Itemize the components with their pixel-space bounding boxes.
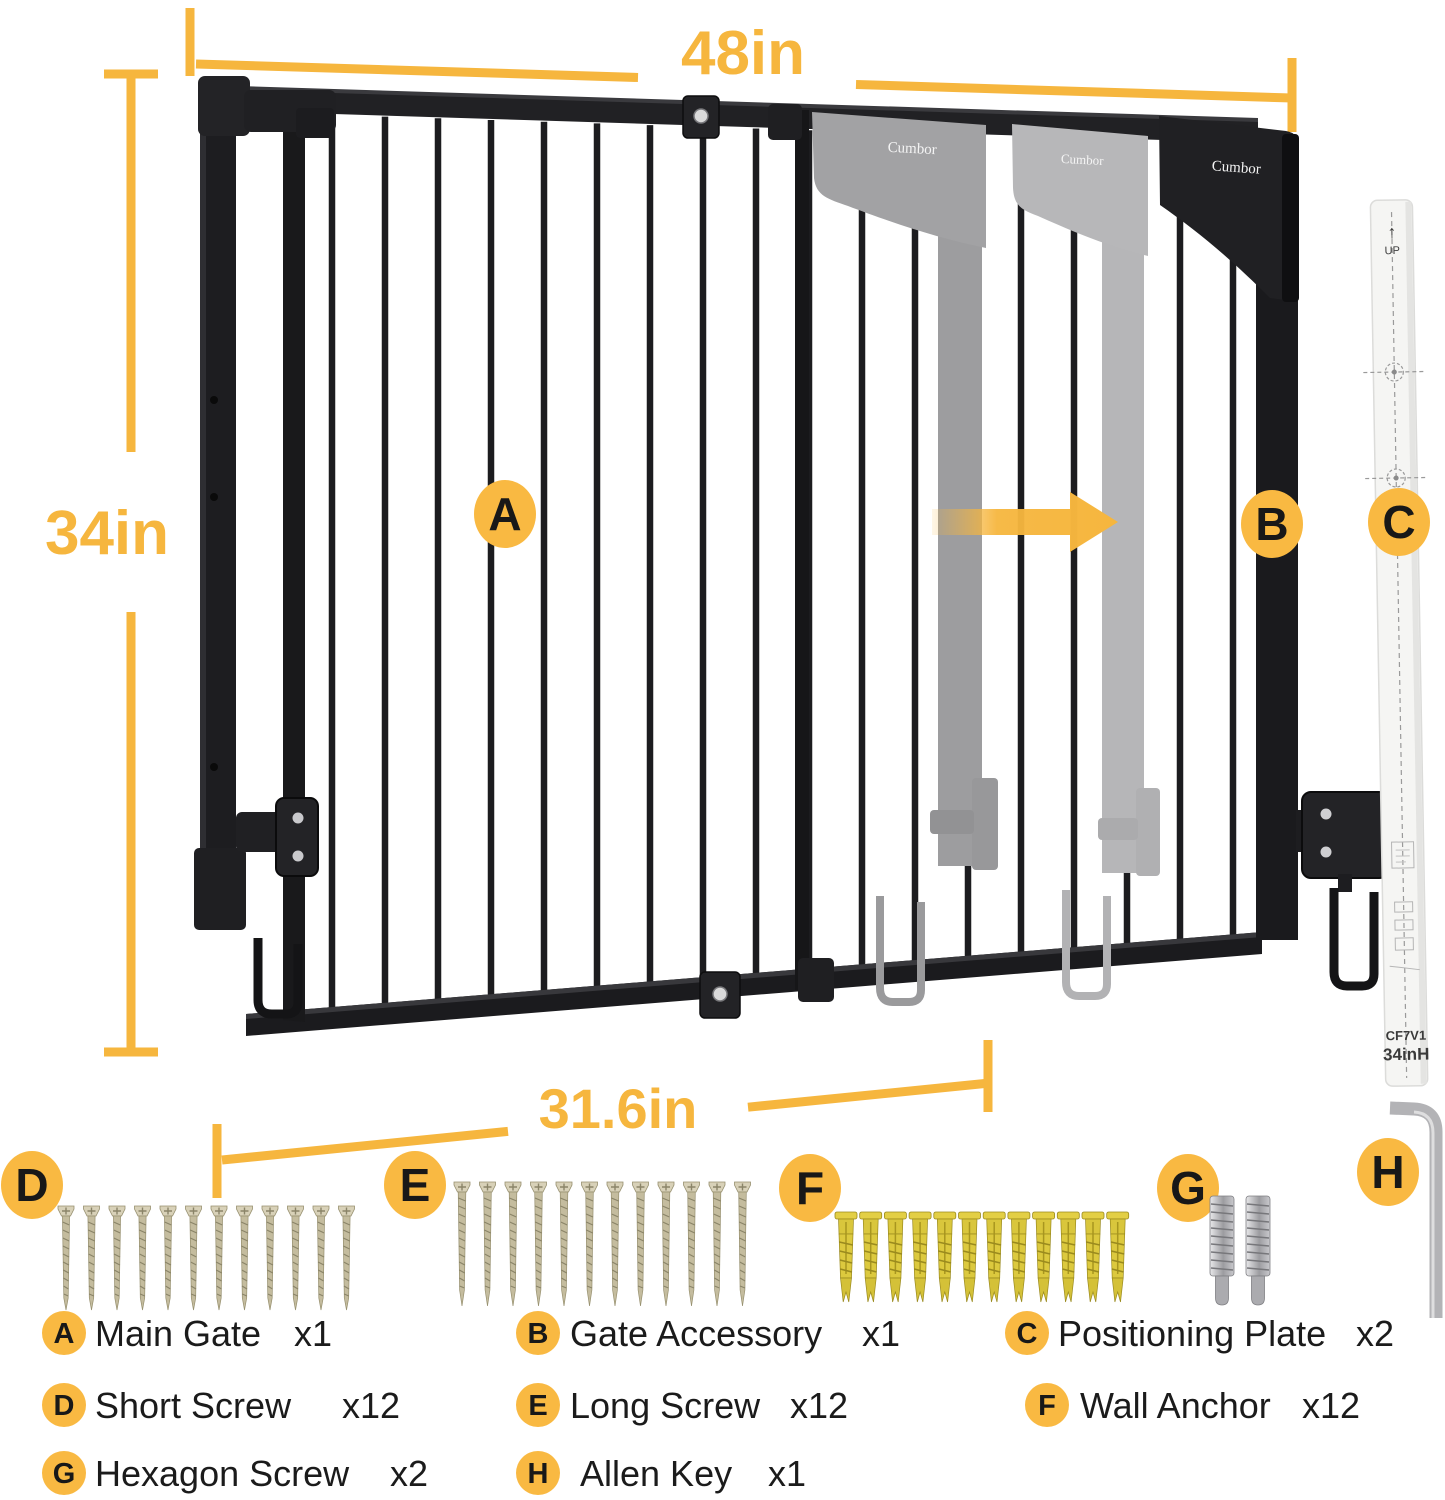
wall-post-left-highlight (200, 78, 206, 860)
legend-item-main-gate: A Main Gate x1 (42, 1311, 332, 1355)
bottom-rail-bracket (798, 958, 834, 1002)
svg-text:F: F (796, 1162, 824, 1214)
post-screw-hole (210, 396, 218, 404)
callout-main-gate: A (474, 480, 536, 548)
gate-mid-stile (795, 110, 809, 990)
ghost-latch-plate (1136, 788, 1160, 876)
svg-text:G: G (1170, 1162, 1206, 1214)
wall-anchors-group (835, 1212, 1129, 1302)
plate-model: CF7V1 (1386, 1028, 1427, 1044)
accessory-foot (1334, 888, 1374, 986)
svg-text:x2: x2 (1356, 1313, 1394, 1354)
legend-item-allen-key: H Allen Key x1 (516, 1451, 806, 1495)
dimension-panel-width: 31.6in (217, 1040, 988, 1198)
svg-text:Allen Key: Allen Key (580, 1453, 732, 1494)
brand-logo: Cumbor (1211, 158, 1261, 177)
brand-logo-ghost2: Cumbor (1061, 151, 1105, 168)
connector-screw (713, 987, 727, 1001)
legend: A Main Gate x1 B Gate Accessory x1 C Pos… (42, 1311, 1394, 1495)
plate-up-arrow: ↑ (1387, 222, 1396, 242)
svg-text:A: A (54, 1318, 75, 1350)
connector-screw (694, 109, 708, 123)
ghost-latch-plate (972, 778, 998, 870)
product-diagram: 48in 34in (0, 0, 1445, 1500)
svg-text:E: E (400, 1159, 431, 1211)
hinge-screw (293, 813, 304, 824)
hinge-screw (293, 851, 304, 862)
svg-text:Main Gate: Main Gate (95, 1313, 261, 1354)
svg-text:x1: x1 (768, 1453, 806, 1494)
callout-long-screw: E (384, 1151, 446, 1219)
plate-size: 34inH (1383, 1045, 1430, 1065)
svg-text:E: E (528, 1390, 547, 1422)
ghost-latch-housing (812, 112, 986, 248)
svg-text:G: G (53, 1458, 76, 1490)
ghost-latch-arm (930, 810, 974, 834)
bottom-hinge-plate (276, 798, 318, 876)
top-hinge-block (198, 76, 250, 136)
hexagon-screws-group (1210, 1196, 1270, 1305)
short-screws-group (58, 1206, 355, 1310)
plate-up-label: UP (1384, 245, 1399, 257)
callout-short-screw: D (1, 1151, 63, 1219)
svg-text:x12: x12 (790, 1385, 848, 1426)
svg-text:F: F (1038, 1390, 1056, 1422)
svg-text:D: D (15, 1159, 48, 1211)
legend-item-wall-anchor: F Wall Anchor x12 (1025, 1383, 1360, 1427)
svg-text:Wall Anchor: Wall Anchor (1080, 1385, 1271, 1426)
svg-text:Long Screw: Long Screw (570, 1385, 761, 1426)
dimension-height-label: 34in (45, 499, 169, 568)
gate-hinge-stile (283, 104, 305, 1022)
legend-item-long-screw: E Long Screw x12 (516, 1383, 848, 1427)
svg-text:x2: x2 (390, 1453, 428, 1494)
dimension-height: 34in (45, 74, 169, 1052)
svg-text:A: A (488, 488, 521, 540)
ghost-latch-housing (1012, 124, 1148, 256)
svg-text:x1: x1 (862, 1313, 900, 1354)
callout-positioning-plate: C (1368, 488, 1430, 556)
brand-logo-ghost1: Cumbor (887, 140, 937, 159)
svg-text:Positioning Plate: Positioning Plate (1058, 1313, 1326, 1354)
accessory-foot-stem (1338, 874, 1352, 892)
top-hinge-step (296, 108, 334, 138)
callout-gate-accessory: B (1241, 490, 1303, 558)
dimension-panel-width-label: 31.6in (539, 1077, 698, 1140)
post-screw-hole (210, 493, 218, 501)
gate-accessory-ghost-2: Cumbor (1012, 124, 1160, 996)
wall-post-left-sleeve (194, 848, 246, 930)
svg-text:C: C (1382, 496, 1415, 548)
long-screws-group (454, 1182, 751, 1306)
svg-text:H: H (1371, 1146, 1404, 1198)
legend-item-gate-accessory: B Gate Accessory x1 (516, 1311, 900, 1355)
diagram-canvas: 48in 34in (0, 0, 1445, 1500)
legend-item-hexagon-screw: G Hexagon Screw x2 (42, 1451, 428, 1495)
svg-text:B: B (528, 1318, 549, 1350)
svg-text:C: C (1017, 1318, 1038, 1350)
svg-text:x12: x12 (1302, 1385, 1360, 1426)
ghost-latch-arm (1098, 818, 1138, 840)
post-screw-hole (210, 763, 218, 771)
legend-item-positioning-plate: C Positioning Plate x2 (1005, 1311, 1394, 1355)
accessory-wall-plate (1302, 792, 1388, 878)
dimension-total-width-label: 48in (681, 19, 805, 88)
svg-text:Short Screw: Short Screw (95, 1385, 292, 1426)
callout-wall-anchor: F (779, 1154, 841, 1222)
svg-text:Gate Accessory: Gate Accessory (570, 1313, 822, 1354)
svg-text:B: B (1255, 498, 1288, 550)
accessory-housing-cap (1282, 134, 1299, 302)
legend-item-short-screw: D Short Screw x12 (42, 1383, 400, 1427)
plate-screw (1321, 847, 1332, 858)
svg-text:D: D (54, 1390, 75, 1422)
svg-text:x1: x1 (294, 1313, 332, 1354)
svg-text:Hexagon Screw: Hexagon Screw (95, 1453, 350, 1494)
svg-text:H: H (528, 1458, 549, 1490)
top-rail-bracket (768, 104, 802, 140)
svg-text:x12: x12 (342, 1385, 400, 1426)
gate-bars (332, 115, 1233, 1024)
callout-allen-key: H (1357, 1138, 1419, 1206)
plate-screw (1321, 809, 1332, 820)
